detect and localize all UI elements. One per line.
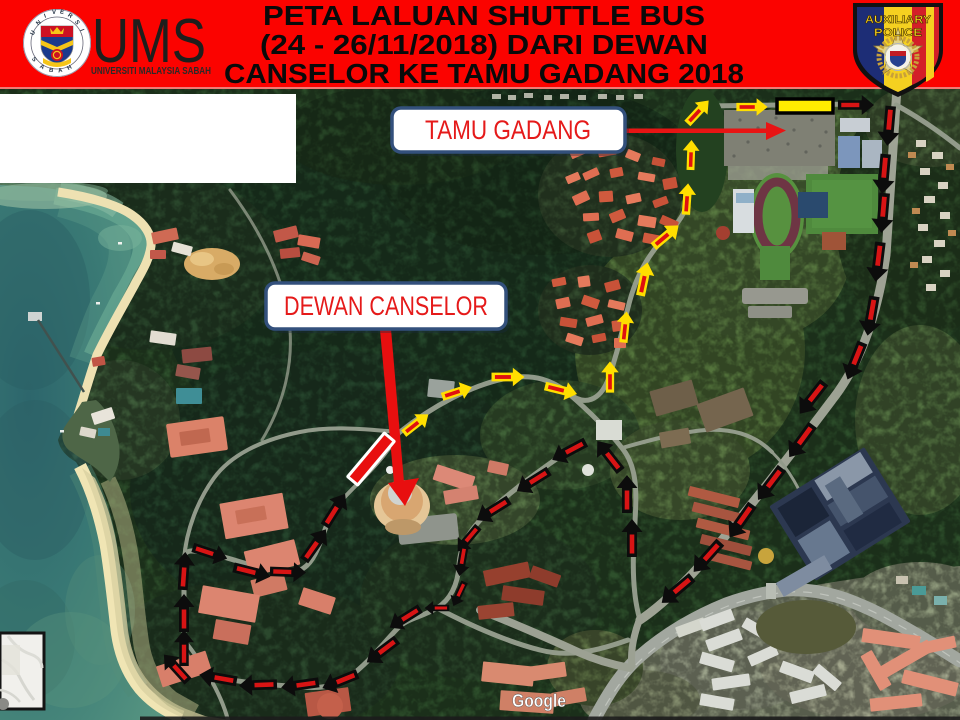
svg-text:POLICE: POLICE <box>874 27 922 39</box>
svg-text:(24 - 26/11/2018) DARI DEWAN: (24 - 26/11/2018) DARI DEWAN <box>260 29 708 60</box>
svg-text:TAMU GADANG: TAMU GADANG <box>425 115 591 145</box>
svg-text:V: V <box>52 10 56 16</box>
svg-text:CANSELOR KE TAMU GADANG 2018: CANSELOR KE TAMU GADANG 2018 <box>224 58 744 89</box>
svg-text:Google: Google <box>512 691 566 711</box>
svg-text:UNIVERSITI MALAYSIA SABAH: UNIVERSITI MALAYSIA SABAH <box>91 65 211 77</box>
svg-text:DEWAN CANSELOR: DEWAN CANSELOR <box>284 291 488 321</box>
svg-text:AUXILIARY: AUXILIARY <box>865 14 932 26</box>
svg-text:PETA LALUAN SHUTTLE BUS: PETA LALUAN SHUTTLE BUS <box>263 0 705 31</box>
